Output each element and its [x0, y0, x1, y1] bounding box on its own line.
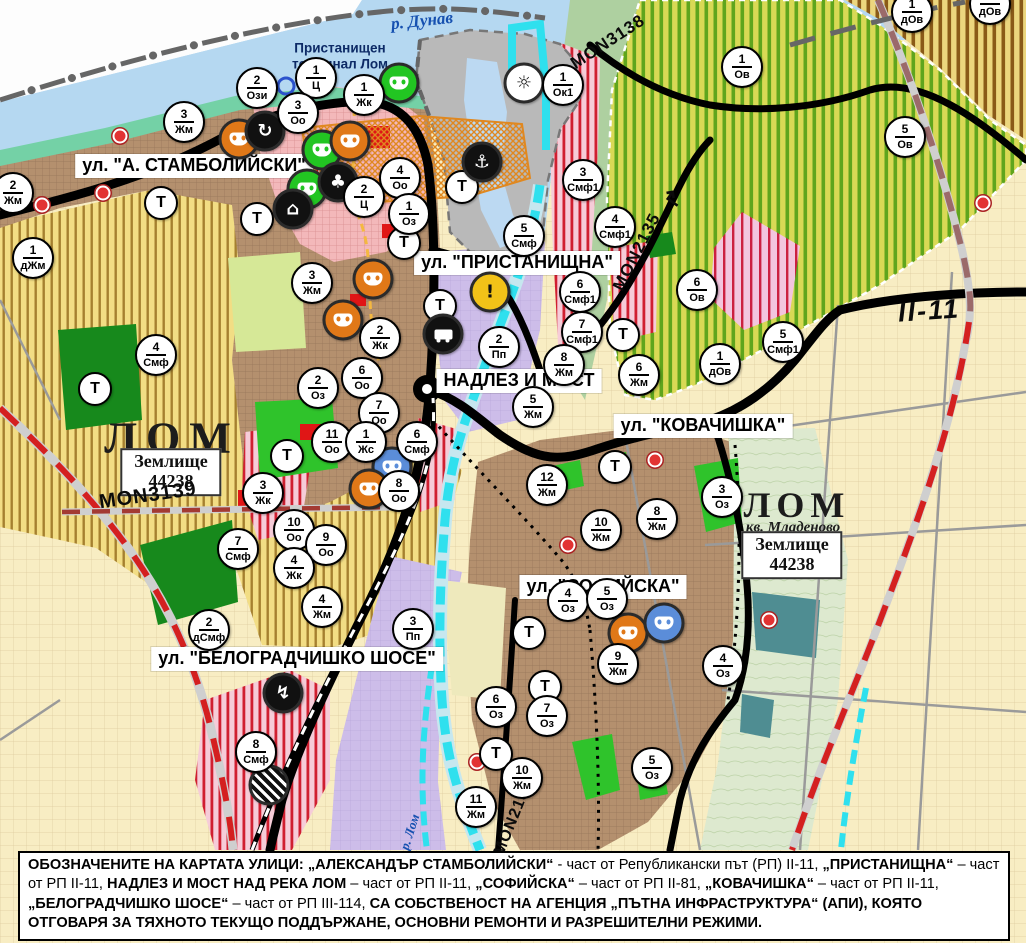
power-icon: ↯ [263, 673, 304, 714]
legend-note-segment: – част от РП II-81, [575, 876, 705, 892]
zone-marker: 5Оз [586, 578, 628, 620]
zone-marker: 8Жм [636, 498, 678, 540]
legend-note-segment: - част от Републикански път (РП) II-11, [553, 857, 822, 873]
zone-divider [647, 518, 667, 520]
zone-teal-1 [752, 592, 820, 658]
zone-marker: 4Оз [702, 645, 744, 687]
zone-number: 4 [397, 164, 404, 176]
zone-number: 5 [530, 393, 537, 405]
zone-number: 2 [496, 333, 503, 345]
red-dot [96, 186, 111, 201]
zone-code: Жм [303, 286, 321, 297]
zone-divider [354, 196, 374, 198]
zone-marker: 4Оо [379, 157, 421, 199]
zone-marker: 10Жм [580, 509, 622, 551]
zone-number: 12 [540, 471, 553, 483]
transformer-marker: Т [512, 616, 546, 650]
zone-code: Жм [467, 810, 485, 821]
zone-number: 1 [560, 71, 567, 83]
road-number-label: II-11 [897, 293, 961, 328]
zone-code: Жм [538, 488, 556, 499]
zone-divider [713, 665, 733, 667]
zone-divider [553, 84, 573, 86]
zone-marker: 1дЖм [12, 237, 54, 279]
zone-marker: 4Жк [273, 547, 315, 589]
zone-divider [895, 136, 915, 138]
zone-marker: 2Жк [359, 317, 401, 359]
zone-divider [572, 331, 592, 333]
zone-marker: 1Ов [721, 46, 763, 88]
zone-code: Смф [225, 552, 251, 563]
zone-number: 7 [376, 399, 383, 411]
zone-divider [605, 226, 625, 228]
zone-divider [316, 544, 336, 546]
zone-divider [710, 363, 730, 365]
zone-number: 1 [30, 244, 37, 256]
zone-marker: 3Жк [242, 472, 284, 514]
zone-divider [489, 346, 509, 348]
zone-code: Жм [4, 196, 22, 207]
zone-code: Жк [356, 98, 371, 109]
zone-number: 8 [654, 505, 661, 517]
zone-marker: 4Смф1 [594, 206, 636, 248]
zone-number: 11 [326, 428, 339, 440]
zone-divider [558, 600, 578, 602]
planning-map-lom: р. Дунав Пристанищен терминал Лом ЛОМ Зе… [0, 0, 1026, 943]
zone-code: Жм [609, 667, 627, 678]
zone-marker: 5Смф1 [762, 321, 804, 363]
landplot-east-line2: 44238 [755, 555, 828, 575]
mask-shape [364, 273, 383, 286]
zone-marker: 7Оз [526, 695, 568, 737]
zone-number: 3 [580, 166, 587, 178]
zone-marker: 6Ов [676, 269, 718, 311]
legend-note-segment: – част от РП III-114, [228, 896, 369, 912]
zone-code: Жк [372, 341, 387, 352]
zone-divider [288, 112, 308, 114]
zone-marker: 6Смф [396, 421, 438, 463]
zone-divider [247, 87, 267, 89]
sunrise-icon: ☼ [504, 63, 545, 104]
zone-code: Ц [360, 200, 368, 211]
zone-number: 6 [577, 278, 584, 290]
zone-divider [389, 490, 409, 492]
zone-code: дОв [901, 15, 923, 26]
zone-divider [302, 282, 322, 284]
zone-code: Оо [286, 533, 301, 544]
zone-marker: 3Пп [392, 608, 434, 650]
zone-divider [352, 377, 372, 379]
zone-marker: 5Смф [503, 215, 545, 257]
transformer-marker: Т [606, 318, 640, 352]
street-label: ул. "КОВАЧИШКА" [614, 414, 793, 438]
red-dot [561, 538, 576, 553]
legend-note: ОБОЗНАЧЕНИТЕ НА КАРТАТА УЛИЦИ: „АЛЕКСАНД… [18, 851, 1010, 941]
zone-code: Оо [290, 116, 305, 127]
zone-divider [597, 598, 617, 600]
zone-number: 10 [515, 764, 528, 776]
zone-divider [407, 441, 427, 443]
zone-code: Смф [243, 755, 269, 766]
zone-marker: 6Жм [618, 354, 660, 396]
mask-shape [341, 135, 360, 148]
zone-divider [403, 628, 423, 630]
zone-code: Смф1 [767, 345, 799, 356]
zone-marker: 3Оо [277, 92, 319, 134]
street-label: ул. "А. СТАМБОЛИЙСКИ" [75, 154, 313, 178]
zone-code: Оз [489, 710, 503, 721]
zone-marker: 4Жм [301, 586, 343, 628]
zone-code: Ози [247, 91, 268, 102]
zone-number: 4 [153, 341, 160, 353]
zone-divider [554, 364, 574, 366]
zone-marker: 9Жм [597, 643, 639, 685]
transformer-marker: Т [240, 202, 274, 236]
zone-number: 6 [694, 276, 701, 288]
zone-marker: 2Оз [297, 367, 339, 409]
zone-marker: 3Смф1 [562, 159, 604, 201]
landplot-east-line1: Землище [755, 535, 828, 555]
zone-code: Оз [540, 719, 554, 730]
zone-code: дОв [709, 367, 731, 378]
legend-note-segment: – част от РП II-11, [346, 876, 475, 892]
zone-divider [642, 767, 662, 769]
zone-divider [902, 11, 922, 13]
zone-code: Жк [286, 571, 301, 582]
zone-number: 5 [902, 123, 909, 135]
zone-number: 4 [565, 587, 572, 599]
mask-shape [619, 627, 638, 640]
zone-divider [354, 94, 374, 96]
zone-number: 1 [406, 200, 413, 212]
zone-number: 10 [594, 516, 607, 528]
zone-number: 6 [359, 364, 366, 376]
zone-marker: 5Ов [884, 116, 926, 158]
zone-code: Жм [175, 125, 193, 136]
zone-number: 10 [287, 516, 300, 528]
zone-code: Оо [392, 181, 407, 192]
zone-number: 5 [521, 222, 528, 234]
zone-marker: 1Жк [343, 74, 385, 116]
landplot-west-line1: Землище [134, 452, 207, 472]
zone-code: Смф [143, 358, 169, 369]
zone-code: Оо [391, 494, 406, 505]
zone-number: 9 [615, 650, 622, 662]
zone-code: Жм [513, 781, 531, 792]
red-dot [762, 613, 777, 628]
zone-divider [537, 715, 557, 717]
zone-number: 5 [780, 328, 787, 340]
zone-number: 4 [319, 593, 326, 605]
mask-shape [360, 483, 379, 496]
zone-number: 3 [719, 483, 726, 495]
zone-number: 3 [309, 269, 316, 281]
zone-marker: 8Оо [378, 470, 420, 512]
zone-teal-2 [740, 694, 774, 738]
zone-number: 9 [323, 531, 330, 543]
zone-marker: 1дОв [699, 343, 741, 385]
zone-marker: 8Жм [543, 344, 585, 386]
culture-mask-icon [330, 121, 371, 162]
legend-note-segment: НАДЛЕЗ И МОСТ НАД РЕКА ЛОМ [107, 876, 346, 892]
zone-divider [308, 387, 328, 389]
zone-marker: 4Смф [135, 334, 177, 376]
zone-marker: 8Смф [235, 731, 277, 773]
zone-number: 3 [260, 479, 267, 491]
zone-number: 1 [717, 350, 724, 362]
zone-marker: 3Жм [163, 101, 205, 143]
transformer-marker: Т [598, 450, 632, 484]
zone-divider [356, 441, 376, 443]
zone-number: 2 [315, 374, 322, 386]
street-label: ул. "БЕЛОГРАДЧИШКО ШОСЕ" [151, 647, 443, 671]
zone-number: 1 [739, 53, 746, 65]
zone-code: Оо [318, 548, 333, 559]
zone-number: 3 [410, 615, 417, 627]
zone-number: 7 [579, 318, 586, 330]
zone-marker: 5Жм [512, 386, 554, 428]
zone-code: Оо [324, 445, 339, 456]
zone-marker: 11Жм [455, 786, 497, 828]
culture-mask-icon [323, 300, 364, 341]
mask-shape [655, 617, 674, 630]
zone-divider [466, 806, 486, 808]
zone-number: 5 [649, 754, 656, 766]
zone-code: Жм [524, 410, 542, 421]
zone-divider [246, 751, 266, 753]
anchor-port-icon: ⚓ [462, 142, 503, 183]
zone-code: Ок1 [553, 88, 573, 99]
red-dot [113, 129, 128, 144]
zone-number: 3 [295, 99, 302, 111]
zone-marker: 6Оз [475, 686, 517, 728]
zone-marker: 3Оз [701, 476, 743, 518]
red-dot [976, 196, 991, 211]
zone-marker: 3Жм [291, 262, 333, 304]
zone-code: Жм [555, 368, 573, 379]
zone-marker: 6Смф1 [559, 271, 601, 313]
zone-marker: 5Оз [631, 747, 673, 789]
zone-marker: 2дСмф [188, 609, 230, 651]
zone-code: Ов [689, 293, 704, 304]
zone-marker: 1Ок1 [542, 64, 584, 106]
zone-code: дОв [979, 7, 1001, 18]
zone-marker: 10Жм [501, 757, 543, 799]
legend-note-segment: „СОФИЙСКА“ [475, 876, 575, 892]
zone-divider [523, 406, 543, 408]
zone-number: 2 [254, 74, 261, 86]
zone-code: Смф1 [599, 230, 631, 241]
red-dot [35, 198, 50, 213]
zone-divider [284, 529, 304, 531]
zone-marker: 7Смф [217, 528, 259, 570]
zone-divider [712, 496, 732, 498]
zone-divider [23, 257, 43, 259]
zone-code: Ов [897, 140, 912, 151]
zone-number: 4 [720, 652, 727, 664]
zone-divider [284, 567, 304, 569]
tumulus-icon: ⌂ [273, 189, 314, 230]
zone-number: 1 [987, 0, 994, 2]
legend-note-segment: „КОВАЧИШКА“ [705, 876, 814, 892]
legend-note-segment: „БЕЛОГРАДЧИШКО ШОСЕ“ [28, 896, 228, 912]
zone-divider [773, 341, 793, 343]
landplot-box-east: Землище 44238 [741, 531, 842, 579]
zone-divider [512, 777, 532, 779]
zone-code: Жм [313, 610, 331, 621]
transformer-marker: Т [78, 372, 112, 406]
mask-shape [334, 314, 353, 327]
zone-divider [370, 337, 390, 339]
zone-code: Смф [404, 445, 430, 456]
zone-divider [322, 441, 342, 443]
zone-marker: 1Оз [388, 193, 430, 235]
zone-code: Жм [592, 533, 610, 544]
zone-code: Смф1 [567, 183, 599, 194]
zone-code: Оз [715, 500, 729, 511]
zone-divider [608, 663, 628, 665]
zone-code: Ц [312, 81, 320, 92]
mask-shape [390, 77, 409, 90]
zone-number: 7 [235, 535, 242, 547]
zone-marker: 2Пп [478, 326, 520, 368]
zone-number: 4 [291, 554, 298, 566]
zone-divider [390, 177, 410, 179]
zone-marker: 12Жм [526, 464, 568, 506]
zone-code: Жс [358, 445, 374, 456]
zone-number: 1 [361, 81, 368, 93]
mask-shape [313, 144, 332, 157]
zone-divider [306, 77, 326, 79]
zone-code: дСмф [193, 633, 226, 644]
zone-code: Жк [255, 496, 270, 507]
zone-number: 1 [909, 0, 916, 10]
zone-divider [3, 192, 23, 194]
zone-number: 11 [470, 793, 483, 805]
zone-divider [369, 412, 389, 414]
zone-marker: 2Ц [343, 176, 385, 218]
zone-code: Смф [511, 239, 537, 250]
zone-code: Оз [311, 391, 325, 402]
zone-number: 6 [414, 428, 421, 440]
zone-number: 6 [493, 693, 500, 705]
zone-code: Пп [492, 350, 507, 361]
truck-depot-icon [423, 314, 464, 355]
zone-divider [514, 235, 534, 237]
zone-number: 2 [377, 324, 384, 336]
zone-divider [570, 291, 590, 293]
red-dot [648, 453, 663, 468]
zone-number: 8 [253, 738, 260, 750]
zone-code: Смф1 [564, 295, 596, 306]
zone-divider [629, 374, 649, 376]
zone-divider [174, 121, 194, 123]
transformer-marker: Т [270, 439, 304, 473]
zone-divider [537, 484, 557, 486]
zone-divider [980, 3, 1000, 5]
zone-number: 3 [181, 108, 188, 120]
zone-divider [399, 213, 419, 215]
zone-divider [486, 706, 506, 708]
zone-divider [732, 66, 752, 68]
warning-icon: ! [470, 272, 511, 313]
zone-code: Оз [600, 602, 614, 613]
zone-divider [573, 179, 593, 181]
zone-code: Оз [561, 604, 575, 615]
zone-number: 2 [10, 179, 17, 191]
zone-marker: 2Ози [236, 67, 278, 109]
port-terminal-line1: Пристанищен [292, 40, 388, 56]
zone-divider [146, 354, 166, 356]
legend-note-segment: „ПРИСТАНИЩНА“ [822, 857, 953, 873]
zone-divider [199, 629, 219, 631]
transformer-marker: Т [144, 186, 178, 220]
legend-note-segment: – част от РП II-11, [814, 876, 939, 892]
zone-code: Ов [734, 70, 749, 81]
zone-number: 5 [604, 585, 611, 597]
culture-mask-icon [353, 259, 394, 300]
zone-code: Пп [406, 632, 421, 643]
zone-number: 6 [636, 361, 643, 373]
zone-divider [312, 606, 332, 608]
zone-number: 2 [206, 616, 213, 628]
zone-code: Жм [630, 378, 648, 389]
truck-shape [434, 329, 452, 339]
zone-divider [687, 289, 707, 291]
zone-number: 7 [544, 702, 551, 714]
zone-divider [228, 548, 248, 550]
zone-number: 8 [561, 351, 568, 363]
zone-number: 4 [612, 213, 619, 225]
zone-number: 2 [361, 183, 368, 195]
zone-code: Жм [648, 522, 666, 533]
zone-number: 8 [396, 477, 403, 489]
zone-code: дЖм [20, 261, 45, 272]
zone-divider [253, 492, 273, 494]
legend-note-segment: ОБОЗНАЧЕНИТЕ НА КАРТАТА УЛИЦИ: „АЛЕКСАНД… [28, 857, 553, 873]
zone-number: 1 [363, 428, 370, 440]
zone-marker: 4Оз [547, 580, 589, 622]
zone-code: Оз [402, 217, 416, 228]
zone-number: 1 [313, 64, 320, 76]
zone-code: Оз [645, 771, 659, 782]
culture-mask-icon [644, 603, 685, 644]
zone-marker: 1Жс [345, 421, 387, 463]
zone-code: Оо [354, 381, 369, 392]
zone-divider [591, 529, 611, 531]
zone-code: Оз [716, 669, 730, 680]
